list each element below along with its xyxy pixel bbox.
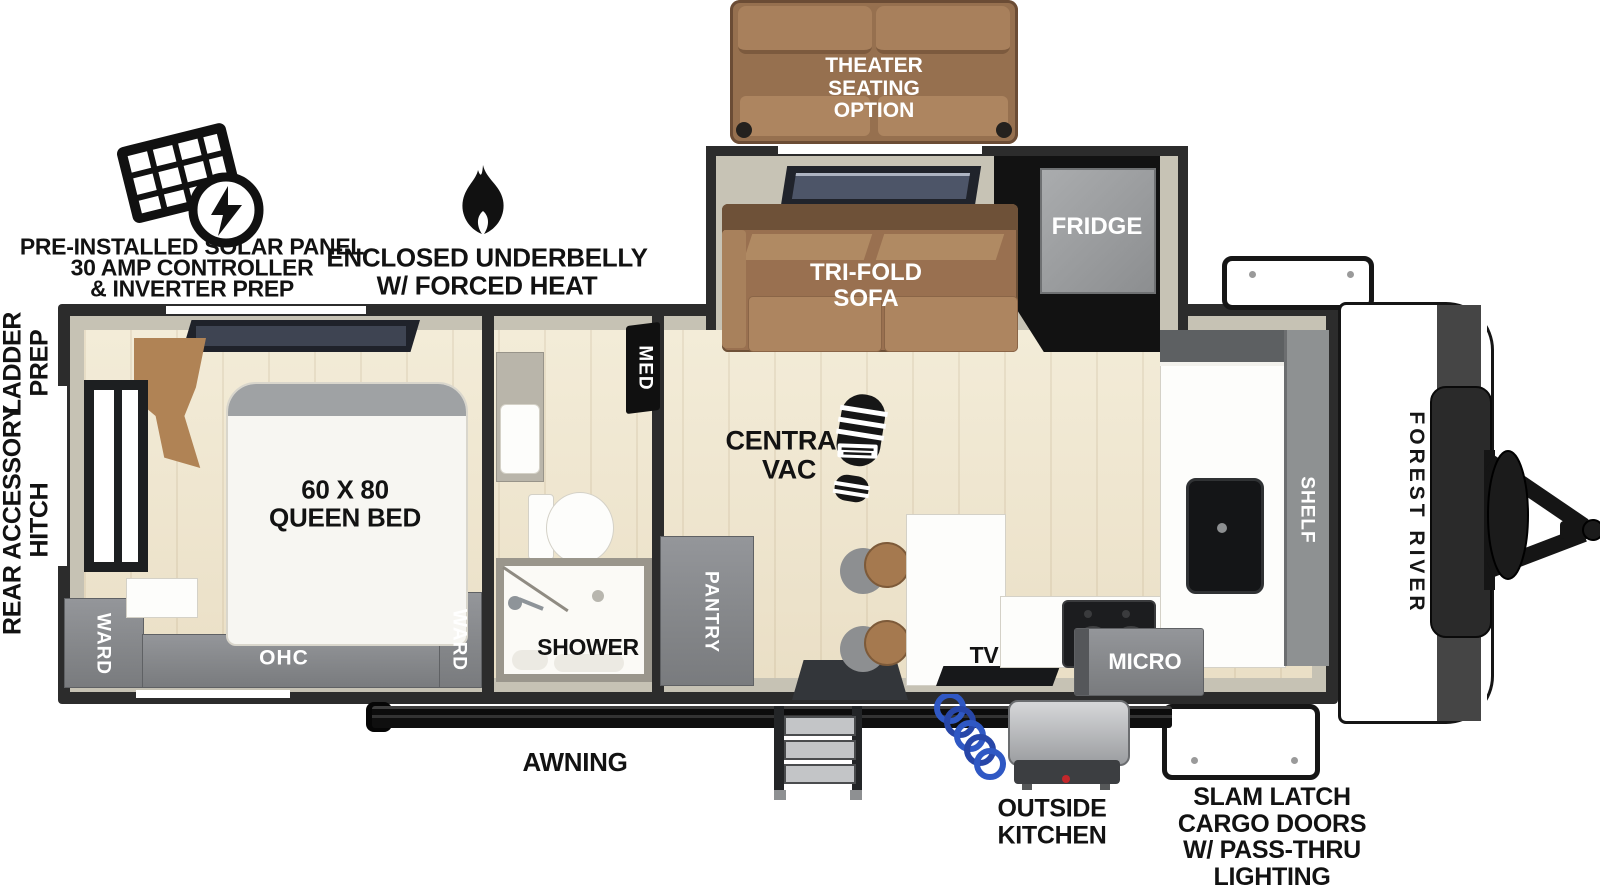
cargo-doors-label: SLAM LATCH CARGO DOORS W/ PASS-THRU LIGH…	[1178, 784, 1366, 890]
solar-panel-icon	[110, 118, 270, 248]
theater-seating-label: THEATER SEATING OPTION	[825, 55, 923, 123]
counter-stool	[864, 620, 910, 666]
toilet-bowl	[546, 492, 614, 564]
slideout-window	[781, 166, 981, 206]
ohc-label: OHC	[259, 648, 309, 671]
outside-kitchen-label: OUTSIDE KITCHEN	[997, 796, 1106, 849]
tv-screen	[936, 666, 1060, 686]
overhead-cabinet	[1160, 330, 1284, 366]
micro-label: MICRO	[1108, 650, 1181, 674]
fridge-label: FRIDGE	[1052, 214, 1143, 240]
flame-icon	[452, 164, 516, 240]
bedroom-skylight	[182, 320, 420, 352]
med-label: MED	[634, 345, 655, 390]
bath-sink	[500, 404, 540, 474]
rear-accessory-hitch-label: REAR ACCESSORY HITCH	[0, 405, 53, 635]
tri-fold-sofa-label: TRI-FOLD SOFA	[810, 260, 922, 312]
ward-right-label: WARD	[448, 609, 469, 671]
ward-left-label: WARD	[92, 613, 113, 675]
bedroom-window	[84, 380, 148, 572]
kitchen-sink	[1186, 478, 1264, 594]
top-wall-window-stripe	[166, 306, 366, 314]
shower-label: SHOWER	[537, 635, 639, 659]
bath-wall-left	[482, 308, 494, 700]
cargo-door-bottom	[1162, 704, 1320, 780]
shower	[496, 558, 652, 682]
awning-label: AWNING	[522, 749, 627, 777]
rv-floorplan-diagram: FRIDGE TRI-FOLD SOFA THEATER SEATING OPT…	[0, 0, 1600, 891]
shelf-label: SHELF	[1296, 476, 1317, 543]
hitch	[1478, 440, 1600, 610]
brand-logo: FOREST RIVER	[1405, 411, 1427, 614]
nightstand	[126, 578, 198, 618]
solar-callout: PRE-INSTALLED SOLAR PANEL 30 AMP CONTROL…	[20, 237, 364, 300]
entry-steps	[774, 706, 862, 800]
counter-stool	[864, 542, 910, 588]
queen-bed-label: 60 X 80 QUEEN BED	[269, 476, 421, 531]
bottom-wall-window-stripe	[136, 690, 290, 698]
tv-label: TV	[970, 643, 999, 667]
slideout-window-stripe	[778, 146, 982, 154]
water-hose-coil	[934, 694, 1010, 780]
ladder-prep-label: LADDER PREP	[0, 312, 53, 414]
outside-kitchen-grill	[1008, 700, 1126, 790]
rear-wall-window-stripe	[58, 386, 67, 566]
pantry-label: PANTRY	[700, 571, 721, 653]
underbelly-callout: ENCLOSED UNDERBELLY W/ FORCED HEAT	[326, 244, 647, 299]
